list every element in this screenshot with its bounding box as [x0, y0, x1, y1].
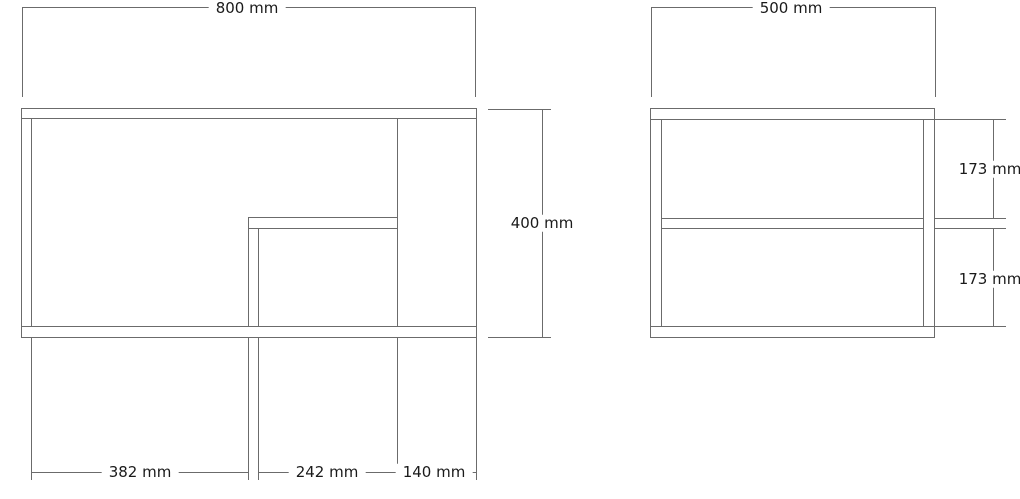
side-view: 500 mm 173 mm 173 mm [0, 0, 1020, 499]
technical-drawing-canvas: 800 mm 382 mm 242 mm 140 mm 400 mm [0, 0, 1020, 499]
side-lower-extension-top [934, 228, 1006, 229]
side-width-label: 500 mm [753, 0, 830, 16]
side-shelf-top-edge [661, 218, 923, 219]
side-shelf-bottom-edge [661, 228, 923, 229]
side-upper-extension-bottom [934, 218, 1006, 219]
side-width-extension-right [935, 7, 936, 97]
side-left-outer-edge [650, 108, 651, 337]
side-lower-extension-bottom [934, 326, 1006, 327]
side-top-panel-bottom-edge [650, 119, 935, 120]
side-bottom-panel-bottom-edge [650, 337, 935, 338]
side-top-panel-top-edge [650, 108, 935, 109]
side-width-extension-left [651, 7, 652, 97]
side-bottom-panel-top-edge [650, 326, 935, 327]
side-upper-extension-top [934, 119, 1006, 120]
side-right-outer-edge [934, 108, 935, 337]
side-upper-compartment-label: 173 mm [952, 161, 1020, 178]
side-lower-compartment-label: 173 mm [952, 271, 1020, 288]
side-left-inner-edge [661, 119, 662, 326]
side-right-inner-edge [923, 119, 924, 326]
